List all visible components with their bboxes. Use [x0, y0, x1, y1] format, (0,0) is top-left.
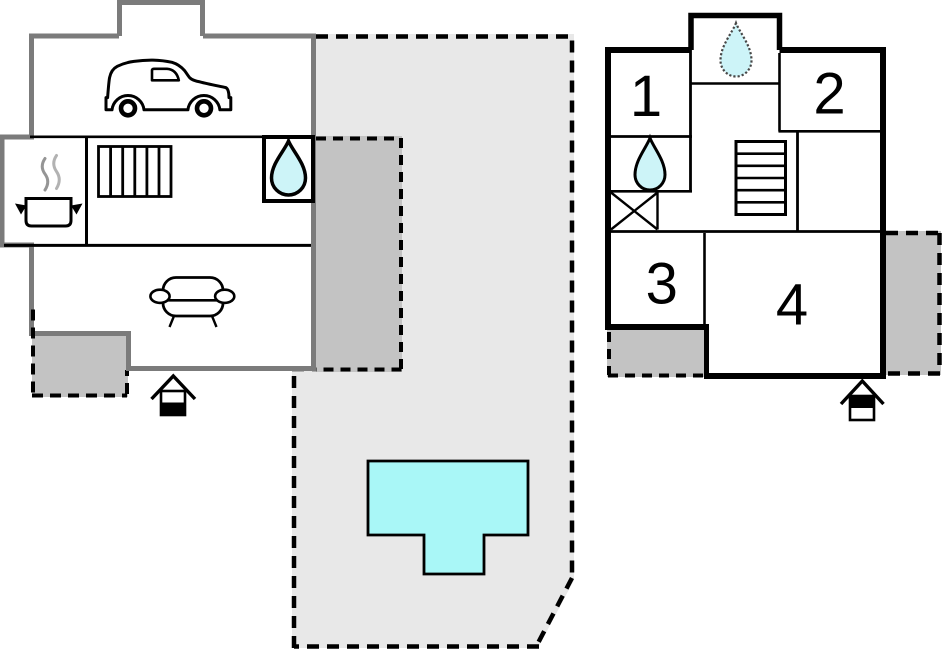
svg-text:3: 3 — [646, 252, 678, 317]
svg-text:2: 2 — [813, 62, 845, 127]
svg-text:1: 1 — [630, 64, 662, 129]
svg-text:4: 4 — [776, 273, 808, 338]
